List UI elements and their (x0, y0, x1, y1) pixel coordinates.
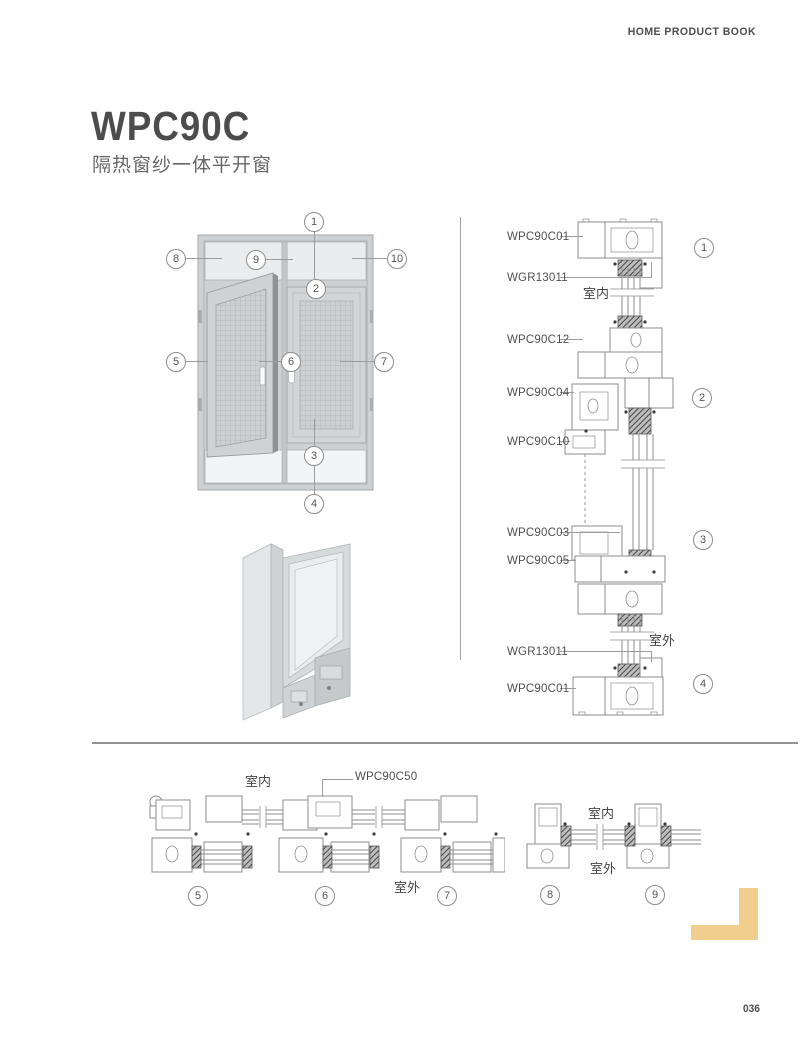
callout-window-10: 10 (387, 249, 407, 269)
page-title: WPC90C (91, 106, 250, 147)
part-label: WPC90C01 (507, 683, 569, 695)
leader-line (186, 361, 208, 362)
callout-number: 8 (547, 889, 553, 901)
callout-number: 4 (311, 498, 317, 510)
horizontal-section-left-drawing (148, 792, 505, 880)
callout-number: 1 (311, 216, 317, 228)
callout-number: 5 (195, 890, 201, 902)
section-divider-horizontal (92, 742, 798, 744)
callout-section-5: 5 (188, 886, 208, 906)
page-number: 036 (743, 1003, 760, 1015)
callout-number: 7 (444, 890, 450, 902)
callout-window-9: 9 (246, 250, 266, 270)
exterior-label: 室外 (394, 877, 420, 896)
callout-section-4: 4 (693, 674, 713, 694)
catalog-page: HOME PRODUCT BOOK WPC90C 隔热窗纱一体平开窗 (0, 0, 800, 1043)
callout-number: 8 (173, 253, 179, 265)
leader-line (314, 466, 315, 494)
exterior-label: 室外 (590, 858, 616, 877)
part-label: WPC90C04 (507, 387, 569, 399)
part-label: WPC90C10 (507, 436, 569, 448)
callout-number: 7 (381, 356, 387, 368)
leader-line (322, 779, 353, 780)
part-label: WPC90C01 (507, 231, 569, 243)
part-label: WPC90C03 (507, 527, 569, 539)
part-label: WPC90C05 (507, 555, 569, 567)
callout-number: 6 (288, 356, 294, 368)
interior-label: 室内 (583, 283, 609, 302)
callout-window-2: 2 (306, 279, 326, 299)
callout-number: 9 (652, 889, 658, 901)
corner-profile-3d-illustration (225, 528, 385, 728)
callout-number: 10 (391, 253, 403, 265)
callout-section-6: 6 (315, 886, 335, 906)
callout-section-7: 7 (437, 886, 457, 906)
callout-number: 2 (699, 392, 705, 404)
callout-window-7: 7 (374, 352, 394, 372)
part-label: WGR13011 (507, 646, 568, 658)
callout-number: 3 (700, 534, 706, 546)
part-label: WPC90C50 (355, 771, 417, 783)
part-label: WPC90C12 (507, 334, 569, 346)
callout-window-3: 3 (304, 446, 324, 466)
callout-window-4: 4 (304, 494, 324, 514)
book-title: HOME PRODUCT BOOK (628, 26, 756, 38)
leader-line (340, 361, 374, 362)
callout-window-5: 5 (166, 352, 186, 372)
leader-line (651, 651, 652, 662)
callout-section-2: 2 (692, 388, 712, 408)
interior-label: 室内 (588, 803, 614, 822)
leader-line (259, 361, 281, 362)
callout-number: 1 (701, 242, 707, 254)
callout-window-1: 1 (304, 212, 324, 232)
leader-line (560, 651, 652, 652)
callout-number: 6 (322, 890, 328, 902)
leader-line (560, 277, 652, 278)
callout-window-6: 6 (281, 352, 301, 372)
callout-number: 3 (311, 450, 317, 462)
exterior-label: 室外 (649, 630, 675, 649)
leader-line (322, 779, 323, 797)
callout-window-8: 8 (166, 249, 186, 269)
callout-number: 9 (253, 254, 259, 266)
leader-line (186, 258, 222, 259)
page-subtitle: 隔热窗纱一体平开窗 (92, 150, 272, 177)
callout-number: 5 (173, 356, 179, 368)
callout-section-3: 3 (693, 530, 713, 550)
corner-accent-shape (691, 925, 758, 940)
leader-line (314, 419, 315, 446)
leader-line (352, 258, 387, 259)
callout-section-9: 9 (645, 885, 665, 905)
part-label: WGR13011 (507, 272, 568, 284)
leader-line (266, 259, 293, 260)
leader-line (651, 262, 652, 278)
callout-number: 2 (313, 283, 319, 295)
callout-section-1: 1 (694, 238, 714, 258)
interior-label: 室内 (245, 771, 271, 790)
callout-number: 4 (700, 678, 706, 690)
callout-section-8: 8 (540, 885, 560, 905)
leader-line (314, 232, 315, 279)
